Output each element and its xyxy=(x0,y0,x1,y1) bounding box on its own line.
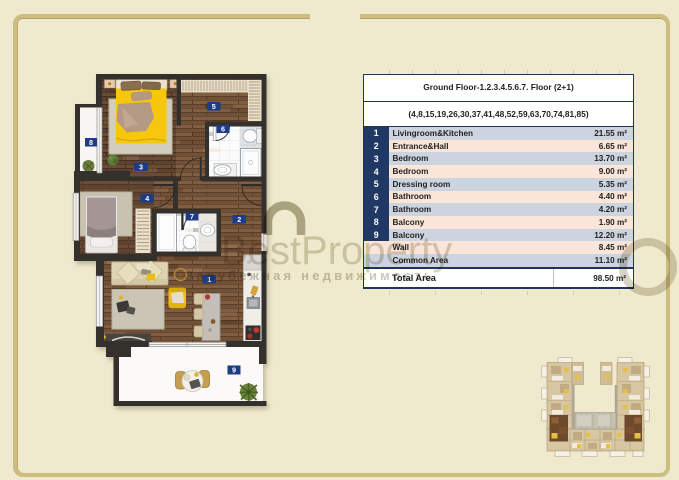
svg-text:9: 9 xyxy=(232,366,236,375)
svg-text:2: 2 xyxy=(237,215,241,224)
svg-text:7: 7 xyxy=(190,212,194,221)
svg-text:4: 4 xyxy=(145,194,149,203)
svg-text:8: 8 xyxy=(89,138,93,147)
svg-text:6: 6 xyxy=(221,125,225,134)
svg-text:5: 5 xyxy=(212,102,216,111)
svg-text:3: 3 xyxy=(139,162,143,171)
